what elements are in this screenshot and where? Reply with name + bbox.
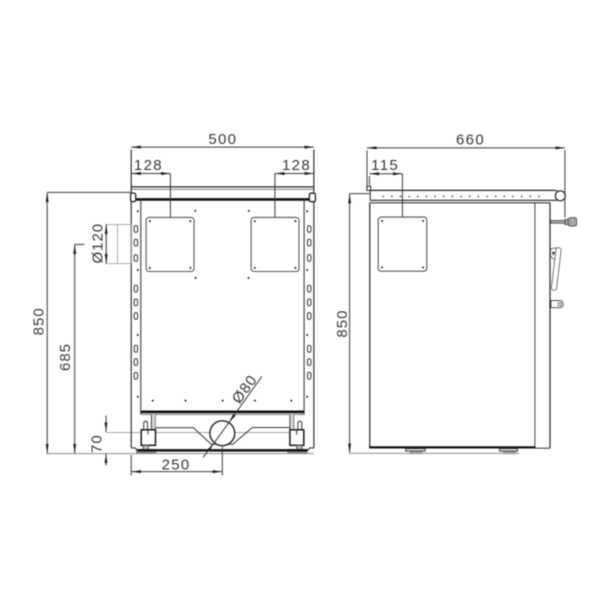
svg-text:500: 500 <box>208 131 237 148</box>
svg-text:128: 128 <box>134 157 163 174</box>
svg-text:250: 250 <box>162 457 191 474</box>
svg-text:850: 850 <box>334 310 351 338</box>
svg-text:115: 115 <box>371 157 399 174</box>
svg-text:Ø120: Ø120 <box>89 223 106 264</box>
svg-text:850: 850 <box>30 307 47 335</box>
svg-text:685: 685 <box>57 343 74 371</box>
svg-text:128: 128 <box>282 157 311 174</box>
svg-text:70: 70 <box>89 434 106 453</box>
svg-text:660: 660 <box>456 132 485 149</box>
